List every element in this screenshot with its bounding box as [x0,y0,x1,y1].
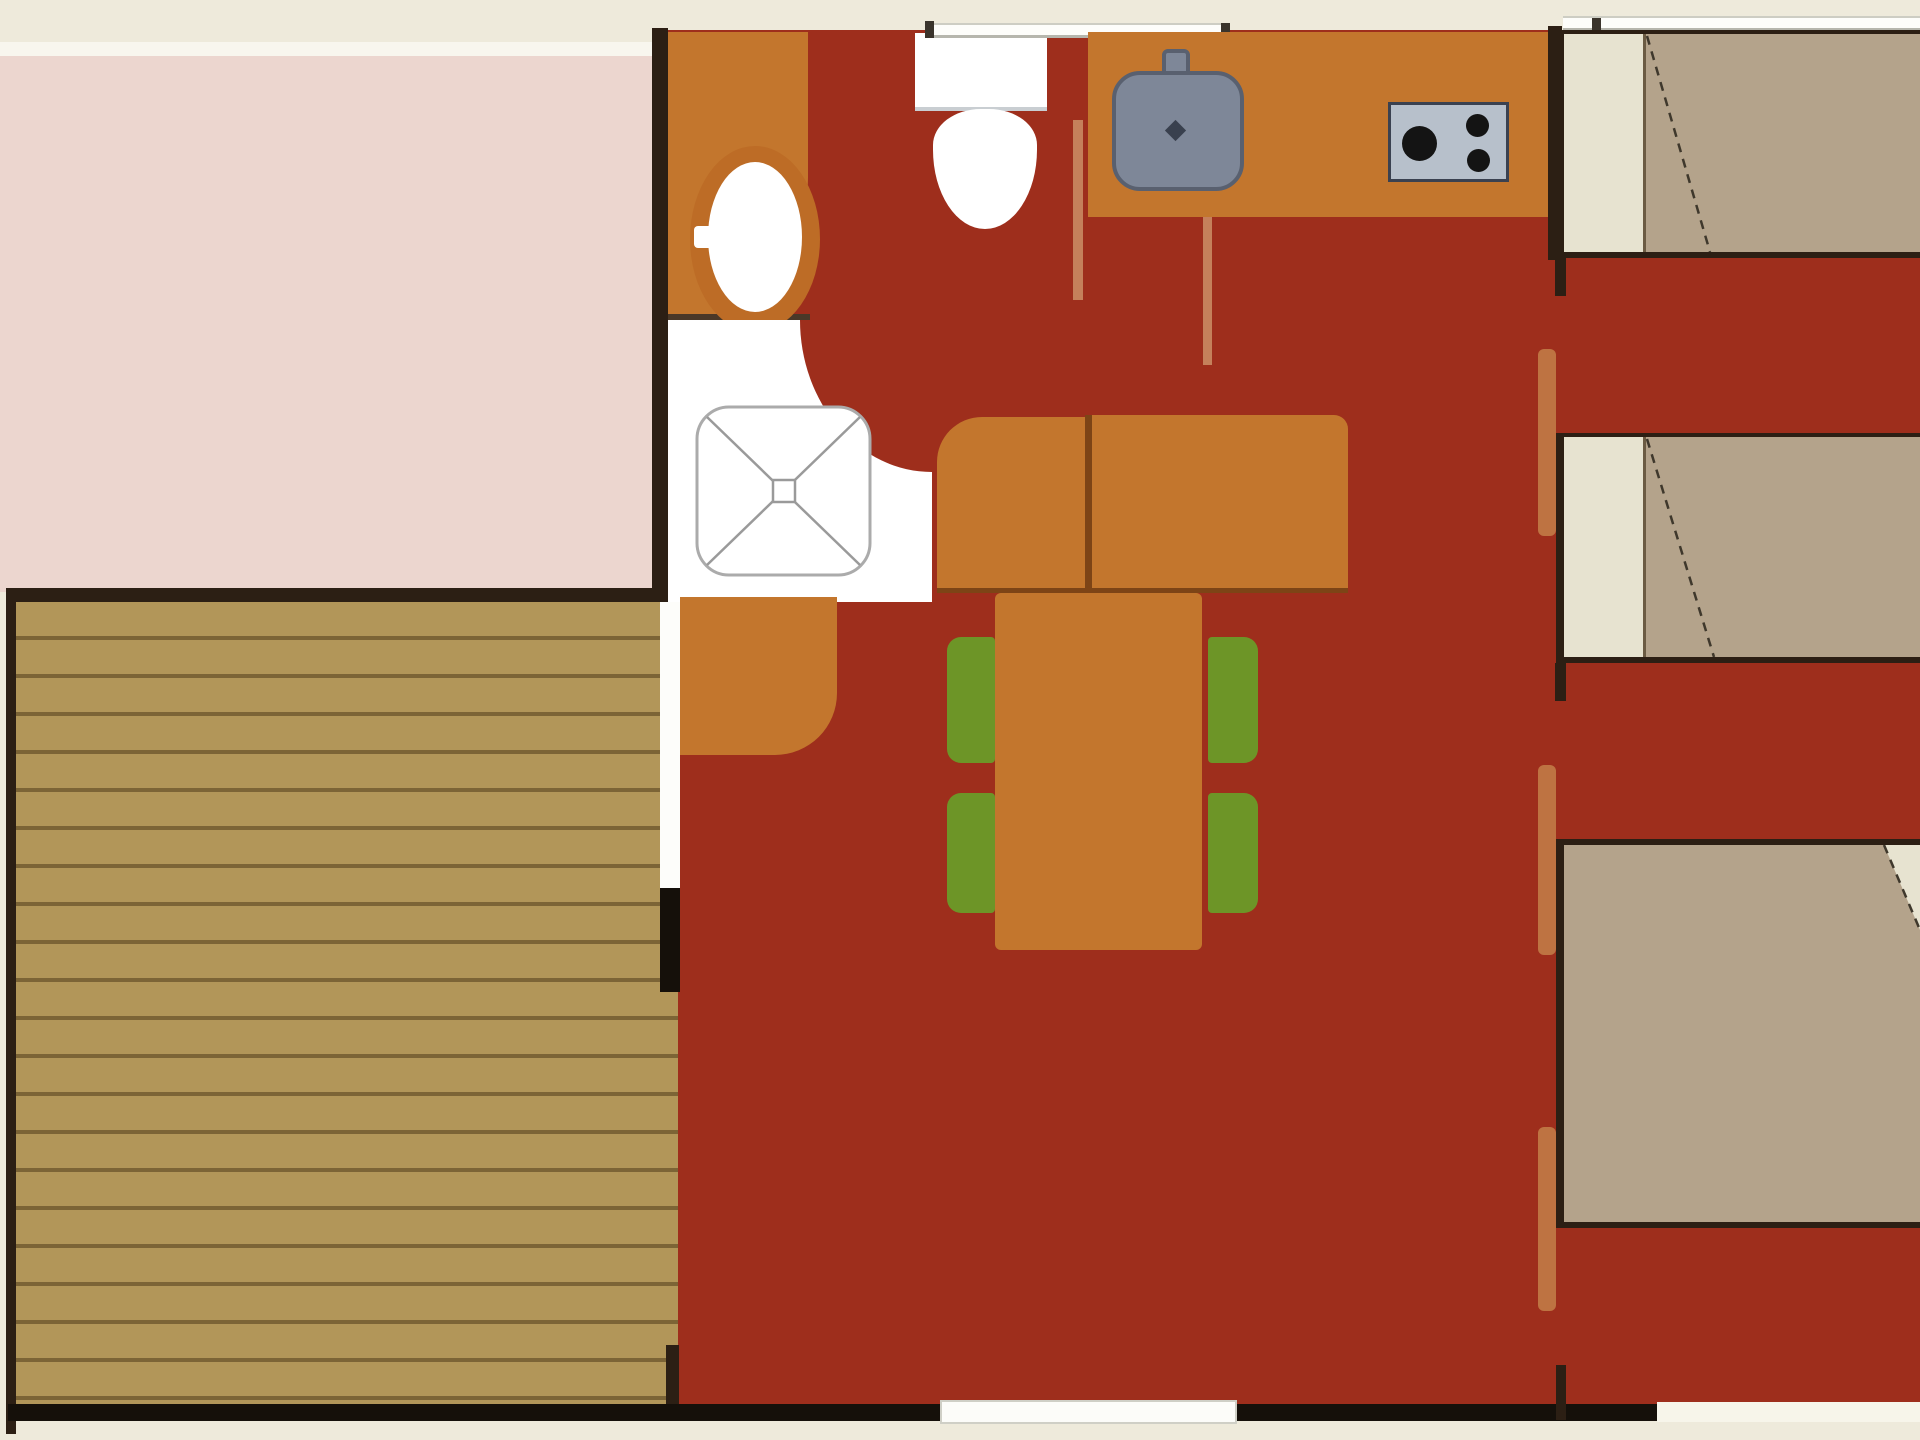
washbasin-drain-dot [750,230,766,246]
bed2-bottom-line [1557,657,1920,663]
window-tick-left [925,21,934,38]
chair-right-top [1208,637,1258,763]
bed1-left-wall [1556,30,1564,258]
stove-burner-small-bottom [1467,149,1490,172]
pink-room [0,56,662,592]
bedroom-wall-lower-segment [1556,1365,1566,1420]
bedroom-door-jamb-3 [1538,1127,1556,1311]
bed1-pillow [1563,34,1643,252]
window-top-right [1563,16,1920,31]
bottom-wall-left [8,1404,940,1421]
bottom-right-opening [1657,1402,1920,1422]
wc-kitchen-partition [1073,120,1083,300]
bedroom-door-jamb-1 [1538,349,1556,536]
deck-side-door-opening [660,888,680,992]
sofa-right-section [1092,415,1348,588]
deck-side-white-wall [660,600,680,888]
stove-burner-large [1402,126,1437,161]
deck-terrace [12,602,678,1420]
sofa-left-section [937,417,1088,588]
chair-left-bottom [947,793,995,913]
bed2-wall-stub [1555,663,1566,701]
chair-left-top [947,637,995,763]
bed3-left-wall [1556,839,1564,1228]
washbasin-faucet [694,226,738,248]
toilet-tank [915,33,1047,111]
sofa-divider [1085,415,1092,588]
bed2-blanket-fold [1640,433,1730,663]
bed3-mattress [1563,845,1920,1222]
bed2-pillow [1563,437,1643,657]
bed3-bottom-line [1563,1222,1920,1228]
bottom-door-opening [940,1400,1237,1424]
bed2-left-wall [1556,433,1564,663]
kitchen-living-partition [1203,217,1212,365]
bed1-wall-stub [1555,258,1566,296]
bed3-blanket-fold [1876,845,1920,940]
shower-tray [695,405,872,577]
bed1-bottom-line [1557,252,1920,258]
bed1-blanket-fold [1640,30,1730,258]
deck-top-wall [6,588,666,602]
bedroom-door-jamb-2 [1538,765,1556,955]
outer-wall-band [0,42,662,56]
bottom-wall-right [1237,1404,1657,1421]
deck-left-wall [6,588,16,1434]
pink-room-right-wall [652,28,668,602]
stove-burner-small-top [1466,114,1489,137]
dining-table [995,593,1202,950]
chair-right-bottom [1208,793,1258,913]
cabinet [680,597,837,755]
floorplan-canvas [0,0,1920,1440]
